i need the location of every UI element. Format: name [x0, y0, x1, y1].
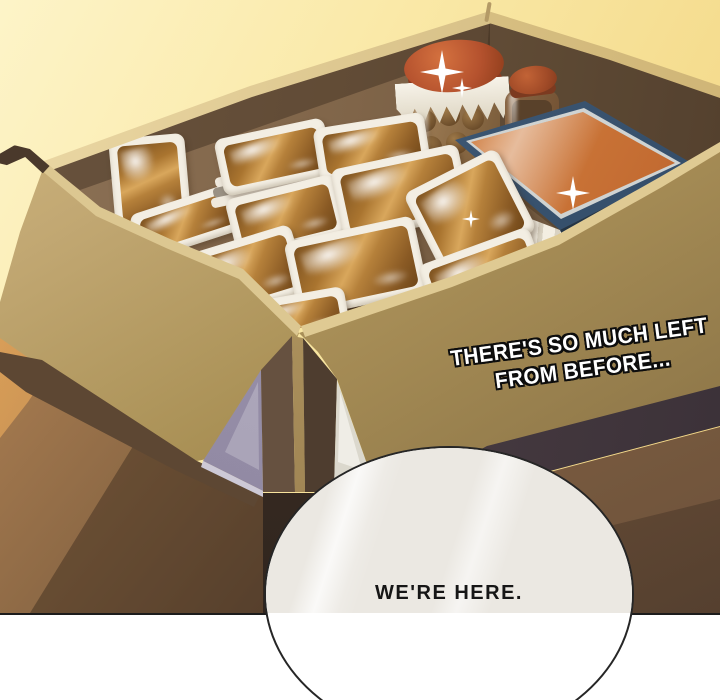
speech-bubble: WE'RE HERE.: [264, 446, 634, 700]
speech-bubble-text: WE'RE HERE.: [266, 582, 632, 605]
comic-panel: THERE'S SO MUCH LEFT FROM BEFORE... WE'R…: [0, 0, 720, 700]
